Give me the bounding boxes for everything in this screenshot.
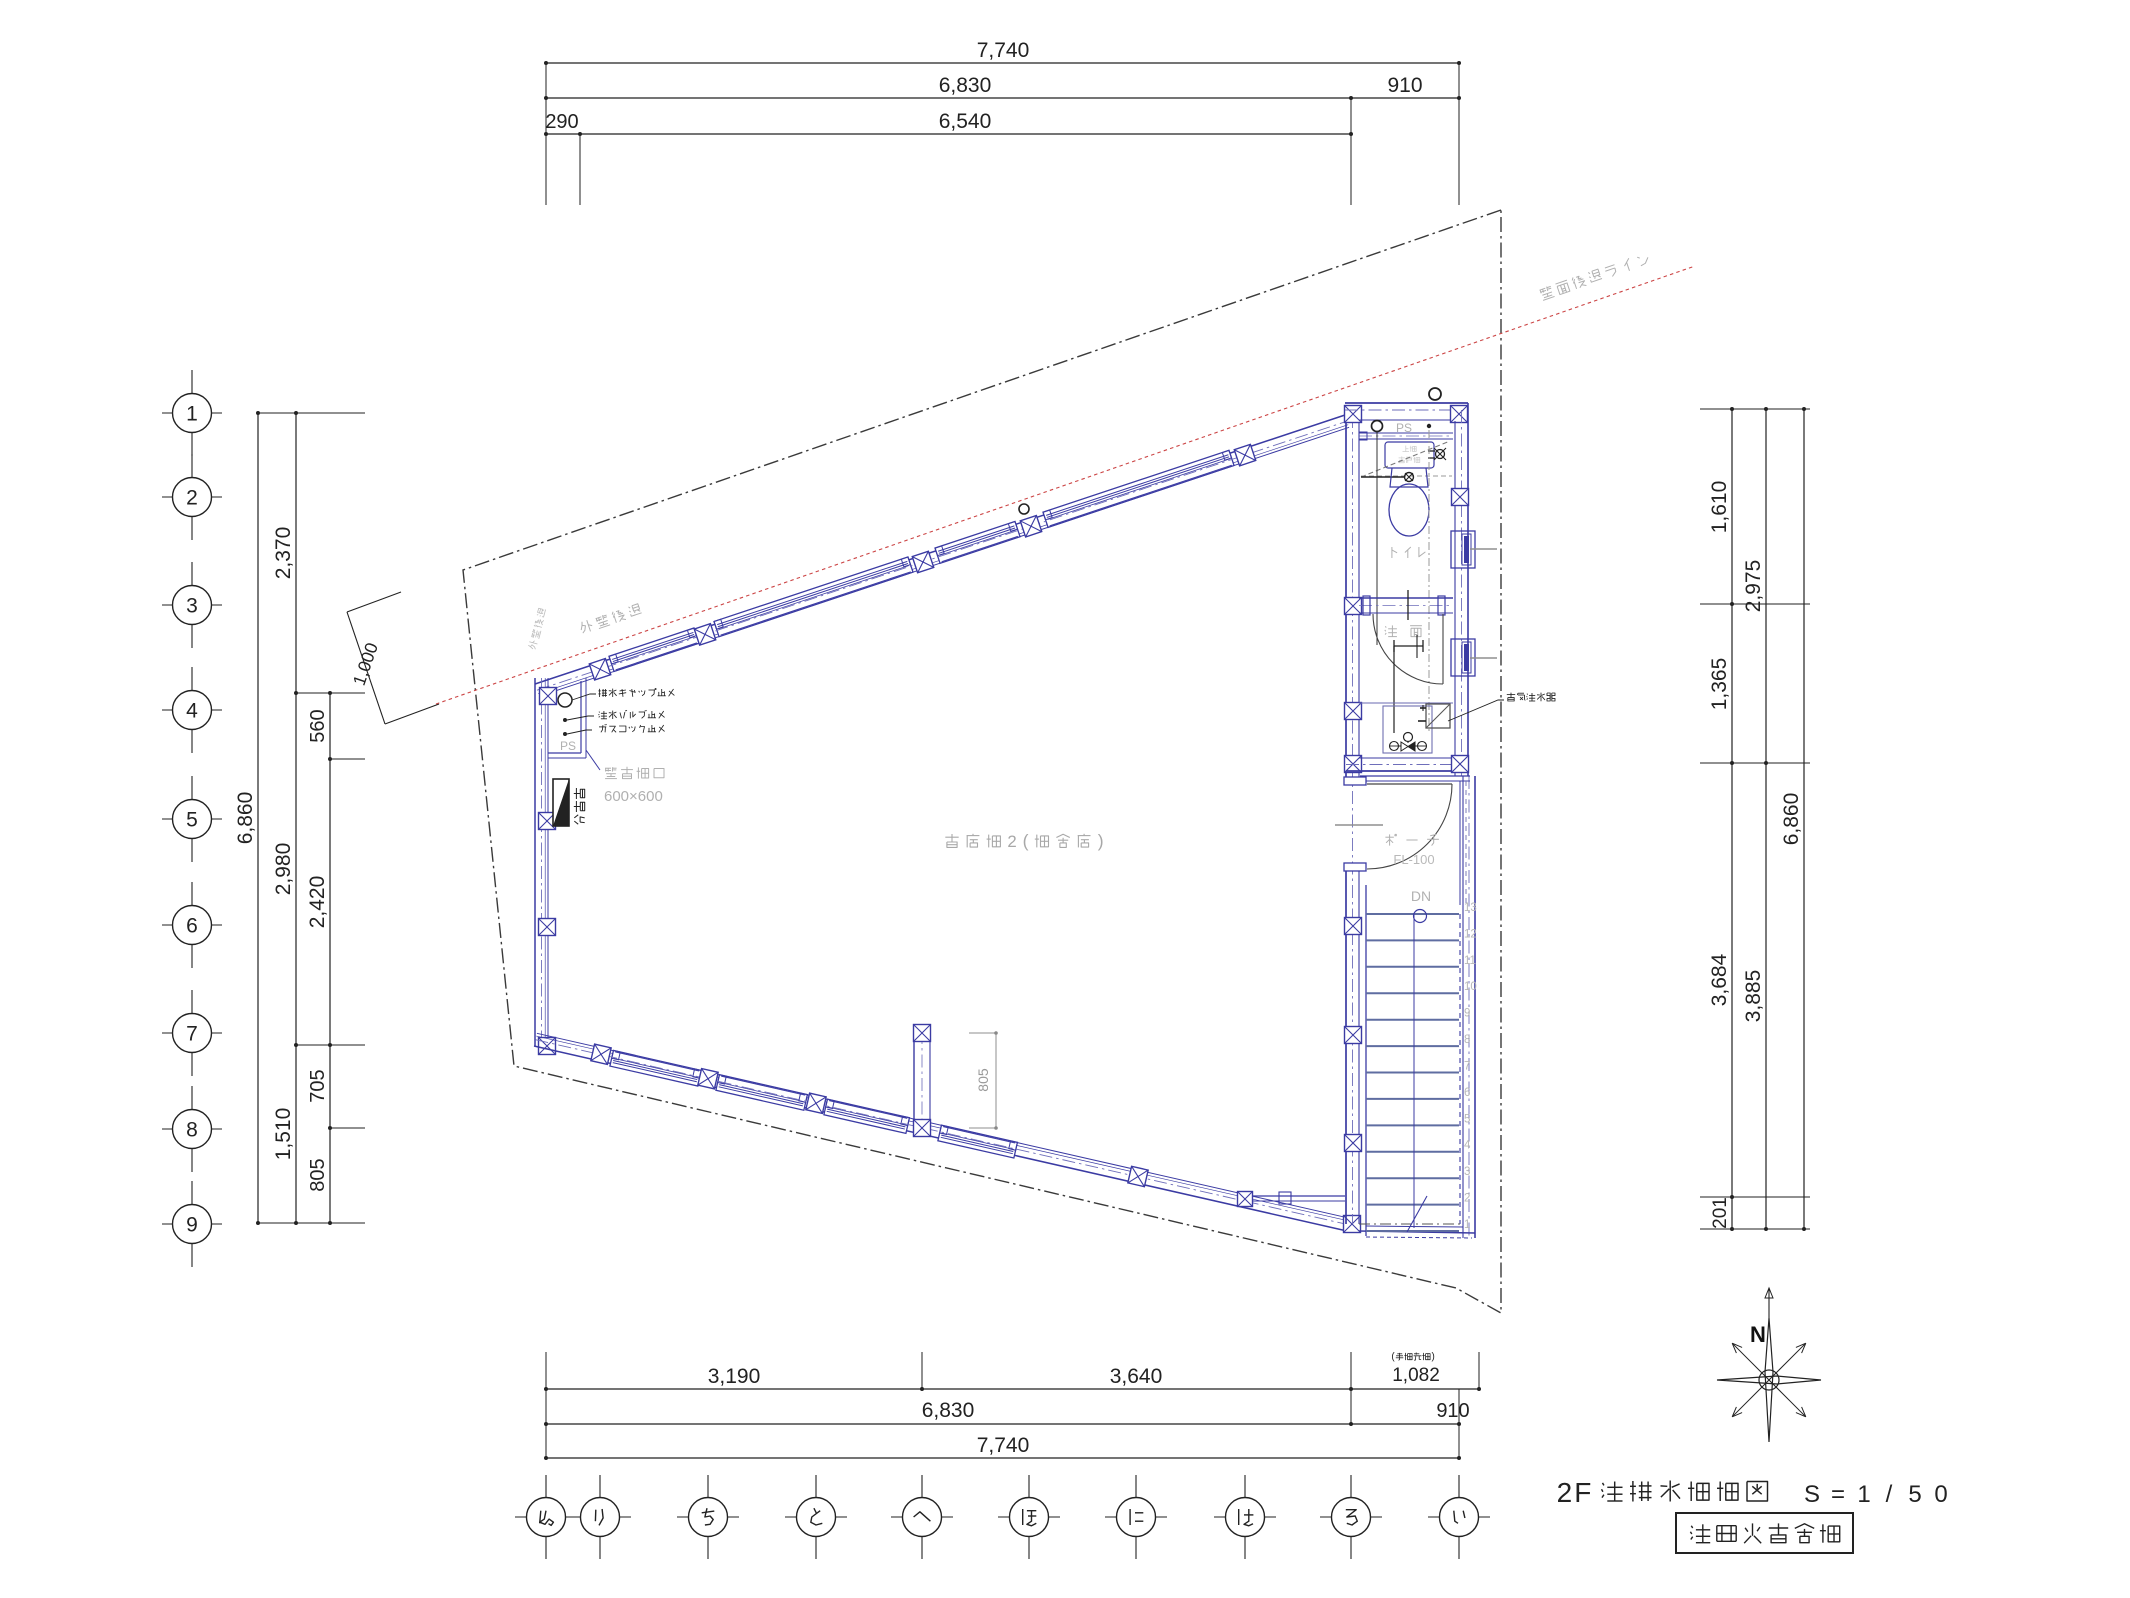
- svg-text:1: 1: [1464, 1219, 1470, 1231]
- svg-text:705: 705: [307, 1069, 329, 1102]
- svg-text:DN: DN: [1411, 888, 1431, 904]
- svg-text:6: 6: [1464, 1087, 1470, 1099]
- svg-text:11: 11: [1464, 955, 1476, 967]
- svg-text:1,082: 1,082: [1392, 1365, 1440, 1386]
- svg-text:6,830: 6,830: [922, 1399, 975, 1422]
- svg-text:3,885: 3,885: [1742, 970, 1765, 1023]
- svg-text:PS: PS: [1396, 421, 1412, 435]
- svg-text:FL-100: FL-100: [1393, 852, 1434, 867]
- svg-text:3: 3: [1464, 1166, 1470, 1178]
- svg-text:1: 1: [186, 403, 198, 426]
- svg-text:8: 8: [1464, 1034, 1470, 1046]
- svg-text:2F: 2F: [1557, 1477, 1594, 1508]
- svg-text:600×600: 600×600: [604, 788, 663, 805]
- svg-text:805: 805: [307, 1158, 329, 1191]
- svg-text:290: 290: [545, 111, 578, 133]
- svg-text:): ): [1431, 1352, 1434, 1363]
- svg-text:13: 13: [1464, 902, 1477, 914]
- svg-text:PS: PS: [560, 739, 576, 753]
- svg-text:2,980: 2,980: [272, 843, 295, 896]
- svg-text:2: 2: [1464, 1193, 1470, 1205]
- svg-text:560: 560: [307, 709, 329, 742]
- svg-text:2,370: 2,370: [272, 527, 295, 580]
- svg-text:12: 12: [1464, 928, 1477, 940]
- svg-text:4: 4: [1464, 1140, 1471, 1152]
- svg-text:1: 1: [1857, 1481, 1870, 1508]
- svg-text:805: 805: [975, 1068, 991, 1092]
- svg-text:6,830: 6,830: [939, 74, 992, 97]
- svg-text:9: 9: [186, 1214, 198, 1237]
- svg-text:4: 4: [186, 700, 198, 723]
- svg-text:7: 7: [1464, 1061, 1470, 1073]
- svg-text:1,610: 1,610: [1708, 481, 1731, 534]
- svg-text:/: /: [1886, 1481, 1893, 1508]
- svg-text:8: 8: [186, 1119, 198, 1142]
- svg-text:7,740: 7,740: [977, 39, 1030, 62]
- svg-text:9: 9: [1464, 1008, 1470, 1020]
- svg-text:S: S: [1804, 1481, 1820, 1508]
- svg-text:10: 10: [1464, 981, 1477, 993]
- svg-text:2: 2: [186, 487, 198, 510]
- svg-text:3,190: 3,190: [708, 1365, 761, 1388]
- svg-text:910: 910: [1387, 74, 1422, 97]
- svg-text:7: 7: [186, 1023, 198, 1046]
- svg-text:201: 201: [1710, 1197, 1731, 1229]
- svg-text:910: 910: [1436, 1400, 1469, 1422]
- svg-text:1,510: 1,510: [272, 1108, 295, 1161]
- svg-text:7,740: 7,740: [977, 1434, 1030, 1457]
- svg-text:5: 5: [1464, 1113, 1470, 1125]
- svg-text:3,684: 3,684: [1708, 953, 1731, 1006]
- svg-text:5: 5: [186, 809, 198, 832]
- svg-text:=: =: [1831, 1481, 1845, 1508]
- svg-text:5: 5: [1908, 1481, 1921, 1508]
- svg-text:1,365: 1,365: [1708, 658, 1731, 711]
- svg-text:2,420: 2,420: [306, 876, 329, 929]
- svg-text:N: N: [1750, 1322, 1766, 1347]
- svg-text:6,540: 6,540: [939, 110, 992, 133]
- svg-text:2,975: 2,975: [1742, 560, 1765, 613]
- svg-text:0: 0: [1934, 1481, 1947, 1508]
- svg-text:3: 3: [186, 595, 198, 618]
- svg-text:): ): [1098, 831, 1104, 851]
- svg-text:6,860: 6,860: [1780, 793, 1803, 846]
- svg-text:(: (: [1023, 831, 1029, 851]
- svg-text:6,860: 6,860: [234, 792, 257, 845]
- svg-text:3,640: 3,640: [1110, 1365, 1163, 1388]
- svg-text:6: 6: [186, 915, 198, 938]
- svg-text:2: 2: [1007, 832, 1016, 851]
